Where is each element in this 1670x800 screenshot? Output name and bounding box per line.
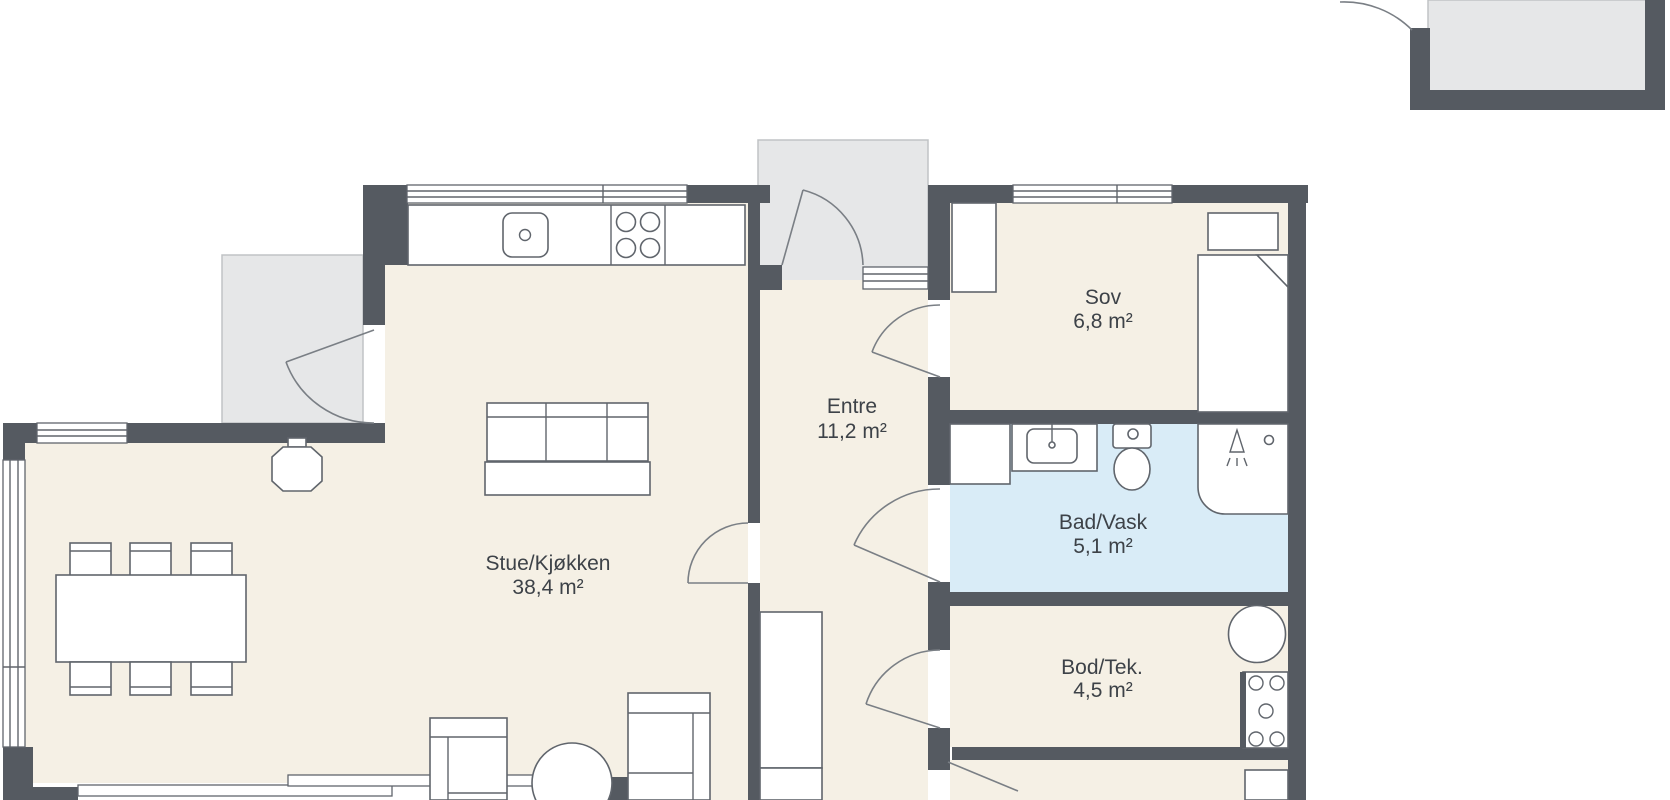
door-swing-icon[interactable]: [1340, 2, 1412, 30]
room-label-stue-name: Stue/Kjøkken: [486, 552, 611, 575]
chair-icon[interactable]: [70, 662, 111, 695]
chair-icon[interactable]: [191, 662, 232, 695]
window-icon[interactable]: [407, 185, 687, 203]
window-icon[interactable]: [863, 267, 928, 289]
bottom-room-furniture[interactable]: [1245, 770, 1288, 800]
sofa-icon[interactable]: [485, 403, 650, 495]
armchair-icon[interactable]: [430, 718, 507, 800]
window-icon[interactable]: [37, 423, 127, 443]
room-bottom-floor[interactable]: [950, 760, 1288, 800]
armchair-icon[interactable]: [628, 693, 710, 800]
chair-icon[interactable]: [130, 543, 171, 576]
room-label-entre-name: Entre: [827, 395, 877, 418]
dining-set: [56, 543, 246, 695]
cabinet-icon[interactable]: [760, 612, 822, 800]
chair-icon[interactable]: [130, 662, 171, 695]
room-label-sov-name: Sov: [1085, 286, 1122, 309]
sink-vanity-icon[interactable]: [1012, 424, 1097, 471]
toilet-icon[interactable]: [1113, 424, 1151, 490]
floor-plan-canvas: Stue/Kjøkken 38,4 m² Entre 11,2 m² Sov 6…: [0, 0, 1670, 800]
water-heater-icon[interactable]: [1229, 606, 1286, 663]
room-label-bod-area: 4,5 m²: [1073, 679, 1133, 702]
entre-furniture: [760, 612, 822, 800]
window-icon[interactable]: [1013, 185, 1172, 203]
chair-icon[interactable]: [191, 543, 232, 576]
kitchen-counter-icon[interactable]: [408, 205, 745, 265]
room-label-sov-area: 6,8 m²: [1073, 310, 1133, 333]
chair-icon[interactable]: [70, 543, 111, 576]
floor-plan-page: Stue/Kjøkken 38,4 m² Entre 11,2 m² Sov 6…: [0, 0, 1670, 800]
room-label-bod-name: Bod/Tek.: [1061, 656, 1143, 679]
detached-porch-floor[interactable]: [1428, 0, 1647, 91]
dining-table-icon[interactable]: [56, 575, 246, 662]
patio-floor[interactable]: [222, 255, 363, 423]
room-label-stue-area: 38,4 m²: [512, 576, 583, 599]
shower-icon[interactable]: [1198, 424, 1288, 514]
kitchen: [408, 205, 745, 265]
wardrobe-icon[interactable]: [952, 203, 996, 292]
room-label-bad-area: 5,1 m²: [1073, 535, 1133, 558]
electrical-panel-icon[interactable]: [1240, 672, 1288, 748]
room-label-entre-area: 11,2 m²: [817, 420, 887, 443]
kitchen-sink-icon[interactable]: [503, 213, 548, 257]
room-label-bad-name: Bad/Vask: [1059, 511, 1148, 534]
washing-machine-icon[interactable]: [950, 424, 1010, 484]
window-icon[interactable]: [3, 460, 25, 747]
bed-icon[interactable]: [1198, 213, 1288, 412]
